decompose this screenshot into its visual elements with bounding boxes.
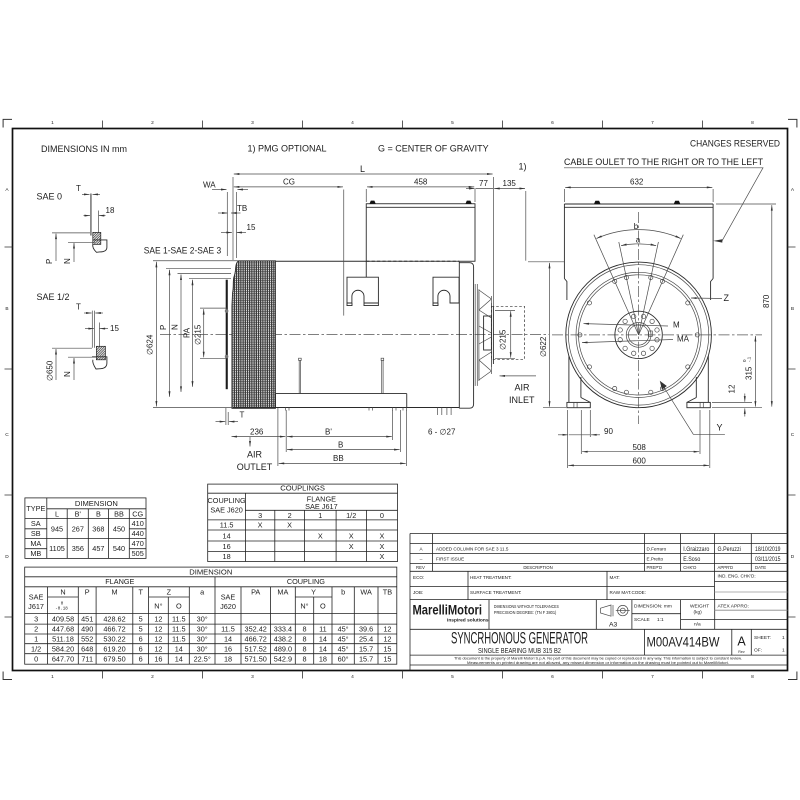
svg-text:7: 7 (651, 674, 654, 680)
svg-text:6: 6 (139, 634, 143, 643)
svg-text:90: 90 (604, 427, 613, 436)
svg-text:870: 870 (762, 294, 771, 308)
svg-text:Measurements on printed drawin: Measurements on printed drawing are not … (467, 660, 729, 665)
svg-text:11: 11 (319, 625, 327, 634)
svg-text:-0.18: -0.18 (55, 608, 68, 612)
svg-text:542.9: 542.9 (274, 655, 292, 664)
svg-text:2: 2 (151, 674, 154, 680)
svg-text:0: 0 (380, 511, 384, 520)
svg-text:1: 1 (51, 120, 54, 126)
svg-text:7: 7 (651, 120, 654, 126)
svg-text:DIMENSION: DIMENSION (75, 499, 118, 508)
svg-text:T: T (76, 303, 81, 312)
svg-text:Y: Y (311, 588, 316, 597)
svg-text:6: 6 (139, 655, 143, 664)
svg-text:447.68: 447.68 (52, 625, 74, 634)
svg-text:D: D (791, 554, 795, 560)
svg-text:PRECISION DEGREE: (TN F 3801): PRECISION DEGREE: (TN F 3801) (494, 610, 557, 616)
svg-text:N: N (63, 258, 72, 264)
svg-text:945: 945 (51, 524, 63, 533)
svg-text:N°: N° (154, 602, 162, 611)
svg-text:511.18: 511.18 (52, 634, 74, 643)
svg-text:18: 18 (106, 206, 115, 215)
svg-text:MA: MA (277, 588, 288, 597)
svg-text:X: X (258, 521, 263, 530)
svg-text:14: 14 (175, 655, 183, 664)
svg-text:14: 14 (223, 531, 231, 540)
svg-text:1: 1 (318, 511, 322, 520)
svg-text:1:1: 1:1 (657, 617, 664, 623)
svg-text:L: L (360, 164, 365, 174)
svg-text:C: C (5, 432, 9, 438)
svg-text:30°: 30° (197, 615, 208, 624)
svg-text:MA: MA (677, 335, 690, 344)
svg-text:b: b (341, 588, 345, 597)
svg-text:451: 451 (81, 615, 93, 624)
svg-text:438.2: 438.2 (274, 634, 292, 643)
svg-text:8: 8 (302, 644, 306, 653)
svg-text:530.22: 530.22 (103, 634, 125, 643)
svg-text:TB: TB (237, 204, 247, 213)
svg-text:D: D (5, 554, 9, 560)
svg-text:1/2: 1/2 (31, 644, 41, 653)
svg-text:JOB:: JOB: (413, 590, 423, 595)
svg-text:ECO:: ECO: (413, 575, 424, 580)
svg-text:1) PMG OPTIONAL: 1) PMG OPTIONAL (248, 144, 327, 154)
svg-text:PA: PA (182, 327, 191, 338)
svg-text:600: 600 (633, 457, 647, 466)
svg-text:PA: PA (251, 588, 260, 597)
svg-text:540: 540 (113, 544, 125, 553)
svg-text:619.20: 619.20 (103, 644, 125, 653)
svg-text:60°: 60° (338, 655, 349, 664)
svg-text:18: 18 (319, 655, 327, 664)
svg-text:Z: Z (724, 293, 730, 303)
svg-text:14: 14 (224, 634, 232, 643)
svg-text:12: 12 (154, 615, 162, 624)
svg-text:P: P (159, 325, 168, 330)
svg-text:1105: 1105 (49, 544, 65, 553)
svg-text:G = CENTER OF GRAVITY: G = CENTER OF GRAVITY (378, 144, 489, 154)
svg-text:COUPLING: COUPLING (208, 496, 246, 505)
svg-text:571.50: 571.50 (245, 655, 267, 664)
svg-text:45°: 45° (338, 634, 349, 643)
svg-text:45°: 45° (338, 625, 349, 634)
svg-text:14: 14 (319, 634, 327, 643)
svg-text:DIMENSIONS IN mm: DIMENSIONS IN mm (41, 144, 127, 154)
svg-text:B': B' (325, 428, 332, 437)
svg-text:11.5: 11.5 (220, 521, 234, 530)
svg-text:5: 5 (139, 625, 143, 634)
svg-text:18/10/2019: 18/10/2019 (755, 546, 781, 553)
svg-text:3: 3 (251, 120, 254, 126)
svg-text:IND. ENG. CHK'D:: IND. ENG. CHK'D: (718, 574, 756, 579)
svg-text:30°: 30° (197, 625, 208, 634)
svg-text:N: N (63, 371, 72, 377)
svg-text:25.4: 25.4 (359, 634, 373, 643)
svg-text:16: 16 (223, 542, 231, 551)
svg-text:457: 457 (92, 544, 104, 553)
svg-text:11.5: 11.5 (221, 625, 235, 634)
svg-text:12: 12 (154, 644, 162, 653)
svg-text:BB: BB (333, 454, 344, 463)
svg-text:APPR'D: APPR'D (718, 565, 734, 570)
svg-text:135: 135 (503, 179, 517, 188)
svg-text:TB: TB (383, 588, 392, 597)
svg-text:45°: 45° (338, 644, 349, 653)
svg-text:∅650: ∅650 (46, 360, 55, 381)
svg-text:CG: CG (283, 178, 295, 187)
svg-text:X: X (379, 531, 384, 540)
svg-text:D.Ferraro: D.Ferraro (647, 547, 667, 552)
svg-text:CG: CG (132, 509, 143, 518)
svg-text:A3: A3 (609, 621, 618, 628)
svg-text:a: a (636, 236, 641, 245)
svg-text:16: 16 (154, 655, 162, 664)
svg-text:440: 440 (132, 529, 144, 538)
svg-text:4: 4 (351, 674, 354, 680)
svg-text:11.5: 11.5 (172, 615, 186, 624)
svg-text:O: O (176, 602, 182, 611)
svg-text:E.Soso: E.Soso (683, 556, 700, 563)
svg-text:30°: 30° (197, 644, 208, 653)
svg-text:14: 14 (175, 644, 183, 653)
svg-text:584.20: 584.20 (52, 644, 74, 653)
svg-text:WA: WA (203, 181, 216, 190)
svg-text:ADDED COLUMN FOR SAE 3 11.5: ADDED COLUMN FOR SAE 3 11.5 (436, 547, 509, 552)
svg-text:MA: MA (30, 539, 41, 548)
svg-text:I.Graizzaro: I.Graizzaro (683, 546, 709, 553)
svg-text:REV: REV (416, 565, 425, 570)
svg-text:COUPLINGS: COUPLINGS (280, 484, 325, 493)
svg-text:508: 508 (633, 443, 647, 452)
svg-text:3: 3 (251, 674, 254, 680)
svg-text:O: O (320, 602, 326, 611)
svg-text:BB: BB (114, 509, 124, 518)
svg-text:1/2: 1/2 (346, 511, 356, 520)
svg-text:1): 1) (519, 162, 527, 172)
svg-text:Z: Z (167, 588, 172, 597)
svg-text:356: 356 (72, 544, 84, 553)
svg-text:AIR: AIR (515, 383, 531, 393)
svg-text:16: 16 (224, 644, 232, 653)
svg-text:B: B (5, 306, 8, 312)
svg-text:517.52: 517.52 (245, 644, 267, 653)
svg-text:22.5°: 22.5° (194, 655, 211, 664)
svg-text:552: 552 (81, 634, 93, 643)
svg-text:711: 711 (81, 655, 93, 664)
svg-text:3: 3 (258, 511, 262, 520)
svg-text:SAE: SAE (221, 592, 236, 601)
svg-text:SAE: SAE (29, 592, 44, 601)
svg-text:MB: MB (30, 549, 41, 558)
svg-text:WA: WA (360, 588, 372, 597)
svg-text:--: -- (419, 556, 423, 561)
svg-text:12: 12 (383, 634, 391, 643)
svg-text:Y: Y (717, 423, 723, 433)
svg-text:ATEX APPRO:: ATEX APPRO: (718, 603, 749, 609)
svg-text:489.0: 489.0 (274, 644, 292, 653)
svg-text:8: 8 (302, 655, 306, 664)
svg-text:15.7: 15.7 (359, 655, 373, 664)
svg-text:15.7: 15.7 (359, 644, 373, 653)
svg-text:TYPE: TYPE (26, 504, 45, 513)
svg-text:∅624: ∅624 (146, 334, 155, 355)
svg-text:18: 18 (223, 552, 231, 561)
svg-text:SAE J620: SAE J620 (210, 505, 242, 514)
svg-text:470: 470 (132, 539, 144, 548)
svg-text:(kg): (kg) (694, 609, 703, 615)
svg-text:X: X (287, 521, 292, 530)
svg-text:HEAT TREATMENT:: HEAT TREATMENT: (470, 575, 512, 580)
svg-text:L: L (55, 509, 59, 518)
svg-text:Inspired solutions: Inspired solutions (447, 617, 489, 622)
svg-text:632: 632 (630, 178, 644, 187)
svg-text:18: 18 (224, 655, 232, 664)
svg-text:B: B (338, 441, 343, 450)
svg-text:X: X (349, 542, 354, 551)
svg-text:77: 77 (479, 179, 488, 188)
svg-text:450: 450 (113, 524, 125, 533)
svg-text:n/a: n/a (694, 622, 701, 628)
svg-text:N°: N° (300, 602, 308, 611)
svg-text:368: 368 (92, 524, 104, 533)
svg-text:MAT:: MAT: (610, 575, 620, 580)
svg-text:8: 8 (751, 120, 754, 126)
svg-text:2: 2 (288, 511, 292, 520)
svg-text:X: X (379, 552, 384, 561)
svg-text:FIRST ISSUE: FIRST ISSUE (436, 556, 464, 561)
svg-text:INLET: INLET (509, 395, 535, 405)
svg-text:15: 15 (110, 324, 119, 333)
svg-text:∅215: ∅215 (499, 329, 508, 350)
svg-text:6: 6 (139, 644, 143, 653)
svg-text:333.4: 333.4 (274, 625, 292, 634)
svg-text:T: T (240, 411, 245, 420)
svg-text:0: 0 (34, 655, 38, 664)
svg-text:SB: SB (31, 529, 41, 538)
svg-text:COUPLING: COUPLING (287, 577, 325, 586)
svg-text:CHK'D: CHK'D (683, 565, 696, 570)
svg-text:N: N (60, 588, 65, 597)
svg-text:SAE 1/2: SAE 1/2 (37, 292, 70, 302)
svg-text:C: C (791, 432, 795, 438)
svg-text:OUTLET: OUTLET (237, 462, 273, 472)
svg-text:1: 1 (34, 634, 38, 643)
svg-text:SCALE: SCALE (634, 617, 650, 623)
svg-text:6: 6 (551, 120, 554, 126)
svg-text:466.72: 466.72 (245, 634, 267, 643)
svg-text:SURFACE TREATMENT:: SURFACE TREATMENT: (470, 590, 521, 595)
svg-text:SAE 0: SAE 0 (37, 192, 63, 202)
svg-text:6 - ∅27: 6 - ∅27 (428, 428, 456, 437)
svg-text:458: 458 (414, 178, 428, 187)
svg-text:1: 1 (51, 674, 54, 680)
svg-text:647.70: 647.70 (52, 655, 74, 664)
svg-text:N: N (170, 324, 179, 330)
svg-text:SA: SA (31, 519, 41, 528)
svg-text:315: 315 (745, 366, 754, 380)
svg-text:DIMENSIONS WITHOUT TOLERANCES: DIMENSIONS WITHOUT TOLERANCES (494, 604, 559, 610)
svg-text:WEIGHT: WEIGHT (690, 603, 709, 609)
svg-text:X: X (379, 542, 384, 551)
svg-text:6: 6 (551, 674, 554, 680)
svg-text:11.5: 11.5 (172, 625, 186, 634)
svg-text:15: 15 (247, 223, 256, 232)
svg-text:T: T (138, 588, 143, 597)
svg-text:b: b (634, 222, 639, 231)
svg-text:15: 15 (383, 655, 391, 664)
svg-text:428.62: 428.62 (103, 615, 125, 624)
svg-text:410: 410 (132, 519, 144, 528)
svg-text:P: P (45, 259, 54, 264)
svg-text:490: 490 (81, 625, 93, 634)
svg-text:466.72: 466.72 (103, 625, 125, 634)
svg-text:Rev: Rev (738, 650, 745, 654)
svg-text:SHEET:: SHEET: (754, 635, 771, 641)
svg-text:267: 267 (72, 524, 84, 533)
svg-text:236: 236 (250, 428, 264, 437)
svg-text:3: 3 (34, 615, 38, 624)
svg-text:SINGLE BEARING MUB 315 B2: SINGLE BEARING MUB 315 B2 (478, 648, 561, 655)
svg-text:J620: J620 (220, 602, 236, 611)
svg-text:2: 2 (151, 120, 154, 126)
svg-text:CHANGES RESERVED: CHANGES RESERVED (690, 139, 780, 149)
svg-text:14: 14 (319, 644, 327, 653)
svg-text:RAW MAT.CODE:: RAW MAT.CODE: (610, 590, 647, 595)
svg-text:∅622: ∅622 (539, 336, 548, 357)
svg-text:A: A (737, 635, 746, 649)
svg-text:∅215: ∅215 (194, 324, 203, 345)
svg-text:DATE: DATE (755, 565, 766, 570)
svg-text:39.6: 39.6 (359, 625, 373, 634)
svg-text:PREP'D: PREP'D (647, 565, 663, 570)
svg-text:12: 12 (154, 634, 162, 643)
svg-text:12: 12 (154, 625, 162, 634)
svg-text:DIMENSION: mm: DIMENSION: mm (634, 603, 672, 609)
svg-text:2: 2 (34, 625, 38, 634)
svg-text:8: 8 (302, 625, 306, 634)
svg-text:5: 5 (139, 615, 143, 624)
svg-text:B: B (791, 306, 794, 312)
svg-text:15: 15 (383, 644, 391, 653)
svg-text:X: X (349, 531, 354, 540)
svg-text:M: M (673, 321, 680, 330)
svg-text:G.Peruzzi: G.Peruzzi (718, 546, 742, 553)
svg-text:X: X (318, 531, 323, 540)
svg-text:505: 505 (132, 549, 144, 558)
svg-text:352.42: 352.42 (245, 625, 267, 634)
svg-text:E.Pretto: E.Pretto (647, 556, 664, 561)
svg-text:OF:: OF: (754, 648, 762, 654)
svg-text:679.50: 679.50 (103, 655, 125, 664)
svg-text:5: 5 (451, 120, 454, 126)
svg-text:30°: 30° (197, 634, 208, 643)
svg-text:SAE 1-SAE 2-SAE 3: SAE 1-SAE 2-SAE 3 (144, 246, 222, 256)
svg-text:SYNCRHONOUS GENERATOR: SYNCRHONOUS GENERATOR (451, 630, 588, 648)
svg-text:B': B' (75, 509, 82, 518)
svg-text:12: 12 (728, 384, 737, 393)
svg-text:8: 8 (751, 674, 754, 680)
svg-text:M: M (111, 588, 117, 597)
svg-text:4: 4 (351, 120, 354, 126)
svg-text:P: P (85, 588, 90, 597)
svg-text:DIMENSION: DIMENSION (189, 567, 232, 576)
svg-text:J617: J617 (28, 602, 44, 611)
svg-text:8: 8 (302, 634, 306, 643)
svg-text:MarelliMotori: MarelliMotori (413, 602, 483, 618)
svg-text:648: 648 (81, 644, 93, 653)
svg-text:M00AV414BW: M00AV414BW (647, 635, 720, 650)
svg-text:B: B (96, 509, 101, 518)
svg-text:FLANGE: FLANGE (105, 577, 134, 586)
svg-text:1: 1 (782, 648, 785, 654)
svg-text:AIR: AIR (247, 450, 263, 460)
svg-text:5: 5 (451, 674, 454, 680)
svg-text:CABLE OULET TO THE RIGHT OR TO: CABLE OULET TO THE RIGHT OR TO THE LEFT (564, 157, 763, 167)
svg-text:12: 12 (383, 625, 391, 634)
svg-text:11.5: 11.5 (172, 634, 186, 643)
svg-text:DESCRIPTION: DESCRIPTION (523, 565, 552, 570)
svg-text:-.1: -.1 (747, 356, 752, 362)
svg-text:T: T (76, 184, 81, 193)
svg-text:03/11/2015: 03/11/2015 (755, 556, 781, 563)
svg-text:409.58: 409.58 (52, 615, 74, 624)
svg-text:1: 1 (782, 635, 785, 641)
